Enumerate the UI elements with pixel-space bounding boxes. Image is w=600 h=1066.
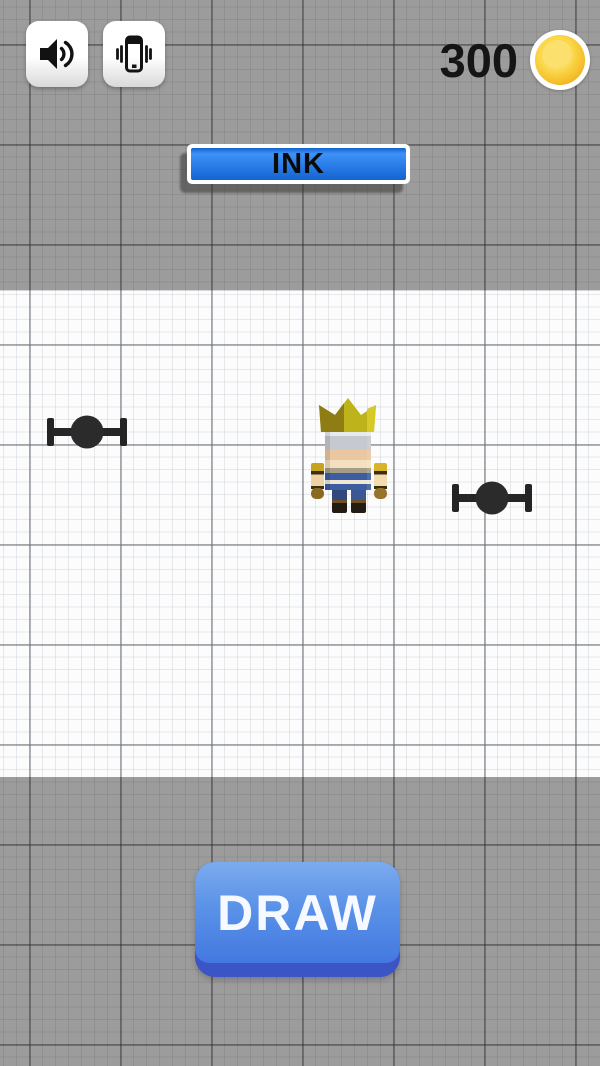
player-character bbox=[311, 396, 387, 521]
legs bbox=[332, 490, 366, 513]
coin-counter: 300 bbox=[440, 30, 590, 90]
draw-button-label: DRAW bbox=[217, 888, 378, 938]
dumbbell-obstacle-left bbox=[47, 415, 127, 454]
sound-button[interactable] bbox=[26, 21, 88, 87]
speaker-icon bbox=[35, 32, 79, 76]
left-arm bbox=[311, 463, 324, 499]
ink-meter: INK bbox=[187, 144, 410, 184]
drawing-canvas[interactable] bbox=[0, 290, 600, 777]
ink-meter-fill: INK bbox=[191, 148, 406, 180]
head-torso bbox=[325, 432, 371, 490]
coin-icon bbox=[530, 30, 590, 90]
ink-meter-label: INK bbox=[272, 150, 325, 179]
vibrate-button[interactable] bbox=[103, 21, 165, 87]
dumbbell-obstacle-right bbox=[452, 481, 532, 520]
draw-button[interactable]: DRAW bbox=[195, 862, 400, 977]
right-arm bbox=[374, 463, 387, 499]
phone-vibrate-icon bbox=[112, 32, 156, 76]
draw-button-face: DRAW bbox=[195, 862, 400, 963]
game-screen: 300 INK bbox=[0, 0, 600, 1066]
coin-count: 300 bbox=[440, 37, 518, 84]
